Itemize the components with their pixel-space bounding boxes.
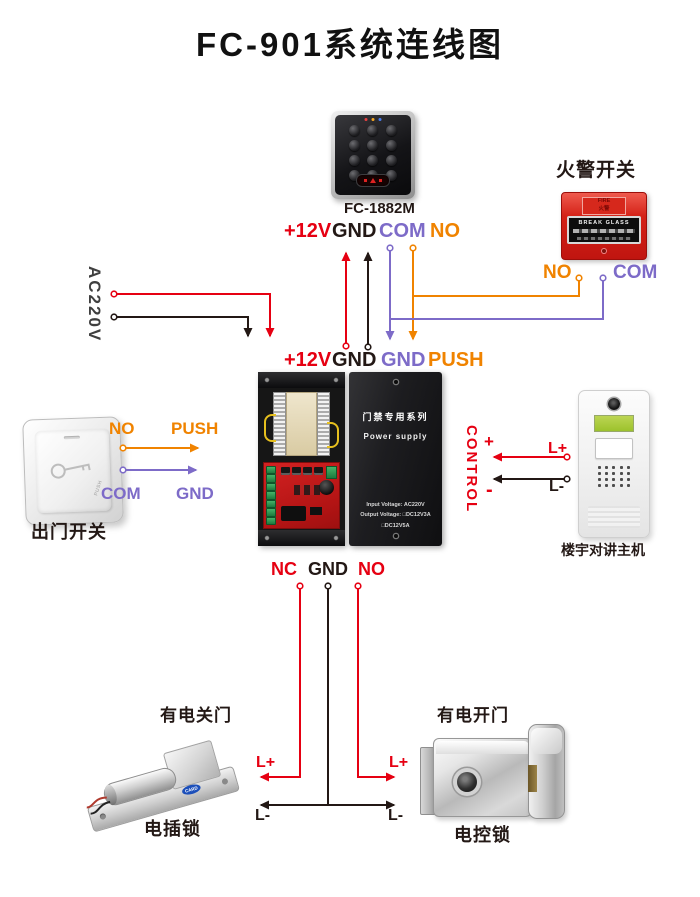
keypad-keys [345, 125, 401, 181]
exit-button-caption: 出门开关 [31, 523, 107, 541]
intercom-minus-label: - [486, 480, 493, 500]
keypad-status-leds-icon [365, 118, 382, 121]
wire-ac-neutral [117, 317, 248, 336]
control-lock-device [420, 722, 566, 832]
psu-output-spec: Output Voltage: □DC12V3A □DC12V5A [349, 510, 442, 531]
psu-terminal-no-bottom: NO [358, 560, 385, 578]
break-glass-label: BREAK GLASS [569, 220, 639, 226]
terminal-block-top-right [326, 466, 337, 479]
bolt-lock-note: 有电关门 [160, 707, 232, 724]
access-keypad-device [331, 111, 415, 199]
wiring-diagram: FC-901系统连线图 FC-1882M 火警开关 FIRE 火警 BREAK … [0, 0, 700, 897]
psu-series-label: 门禁专用系列 [349, 410, 442, 423]
control-lock-strike [528, 724, 565, 819]
fire-alarm-title: 火警开关 [556, 161, 636, 180]
wire-fire-no-branch [414, 281, 579, 296]
bolt-lock-lminus-label: L- [255, 808, 270, 824]
page-title: FC-901系统连线图 [0, 28, 700, 61]
keypad-model-label: FC-1882M [344, 201, 415, 216]
fire-terminal-com: COM [613, 263, 657, 282]
key-icon [46, 451, 100, 485]
keypad-terminal-12v: +12V [284, 221, 331, 241]
keypad-terminal-no: NO [430, 221, 460, 241]
power-supply-open-unit [258, 372, 345, 546]
control-lock-note: 有电开门 [437, 707, 509, 724]
wire-no-to-controllock-lplus [358, 589, 394, 777]
exit-terminal-push: PUSH [171, 420, 218, 437]
fire-tag-cn: 火警 [583, 206, 625, 214]
exit-terminal-gnd: GND [176, 485, 214, 502]
relay [281, 506, 306, 521]
screw-icon [394, 534, 398, 538]
terminal-dot [387, 245, 393, 251]
terminal-dot [410, 245, 416, 251]
intercom-lplus-label: L+ [548, 441, 567, 457]
psu-terminal-push: PUSH [428, 350, 484, 370]
fire-tag: FIRE 火警 [582, 197, 626, 215]
fire-alarm-device: FIRE 火警 BREAK GLASS [561, 192, 647, 260]
intercom-caption: 楼宇对讲主机 [561, 543, 645, 557]
keypad-terminal-com: COM [379, 221, 426, 241]
control-lock-lplus-label: L+ [389, 755, 408, 771]
camera-icon [608, 398, 620, 410]
terminal-dot [111, 314, 117, 320]
terminal-dot [576, 275, 582, 281]
terminal-dot [355, 583, 361, 589]
psu-circuit-board [263, 462, 340, 529]
intercom-grille [588, 506, 640, 528]
intercom-control-label: CONTROL [464, 425, 479, 513]
intercom-lminus-label: L- [549, 479, 564, 495]
terminal-blocks [266, 466, 276, 525]
intercom-call-button [595, 438, 633, 459]
control-lock-body [433, 738, 532, 817]
wire-fire-com-branch [391, 281, 603, 319]
capacitor [319, 480, 334, 495]
terminal-dot [297, 583, 303, 589]
ac-input-label: AC220V [86, 266, 103, 342]
psu-bracket-top [258, 372, 345, 388]
exit-terminal-no: NO [109, 420, 135, 437]
psu-terminal-nc: NC [271, 560, 297, 578]
intercom-screen [594, 415, 634, 432]
wire-nc-to-boltlock-lplus [261, 589, 300, 777]
intercom-device [578, 390, 650, 538]
psu-terminal-gnd: GND [332, 350, 376, 370]
psu-terminal-gnd-bottom: GND [308, 560, 348, 578]
screw-icon [394, 380, 398, 384]
exit-button-led-slot [64, 436, 80, 440]
fire-break-glass: BREAK GLASS [567, 216, 641, 244]
exit-terminal-com: COM [101, 485, 141, 502]
transformer [273, 392, 330, 456]
diode-row [281, 467, 323, 475]
fire-terminal-no: NO [543, 263, 572, 282]
control-lock-lminus-label: L- [388, 808, 403, 824]
keypad-face [335, 115, 411, 195]
ic-chip [310, 507, 322, 515]
component-row [294, 485, 320, 495]
wire-ac-live [117, 294, 270, 336]
psu-input-spec: Input Voltage: AC220V [349, 500, 442, 510]
power-supply-cover-unit: 门禁专用系列 Power supply Input Voltage: AC220… [349, 372, 442, 546]
bolt-lock-lplus-label: L+ [256, 755, 275, 771]
exit-button-plate: PUSH [35, 429, 112, 514]
intercom-plus-label: + [484, 433, 494, 450]
control-lock-cylinder [457, 772, 477, 792]
terminal-dot [564, 476, 570, 482]
psu-terminal-gnd2: GND [381, 350, 425, 370]
terminal-dot [343, 343, 349, 349]
psu-terminal-12v: +12V [284, 350, 331, 370]
keypad-display [356, 174, 390, 187]
terminal-dot [600, 275, 606, 281]
glass-detail-row [573, 229, 635, 233]
fire-tag-en: FIRE [583, 198, 625, 206]
psu-specs: Input Voltage: AC220V Output Voltage: □D… [349, 500, 442, 531]
glass-detail-row2 [577, 237, 631, 240]
bolt-lock-caption: 电插锁 [144, 820, 201, 838]
control-lock-caption: 电控锁 [454, 826, 511, 844]
screw-icon [602, 249, 606, 253]
psu-name-label: Power supply [349, 432, 442, 441]
terminal-dot [111, 291, 117, 297]
speaker-grid-icon [597, 466, 631, 487]
keypad-terminal-gnd: GND [332, 221, 376, 241]
terminal-dot [325, 583, 331, 589]
psu-bracket-bottom [258, 530, 345, 546]
